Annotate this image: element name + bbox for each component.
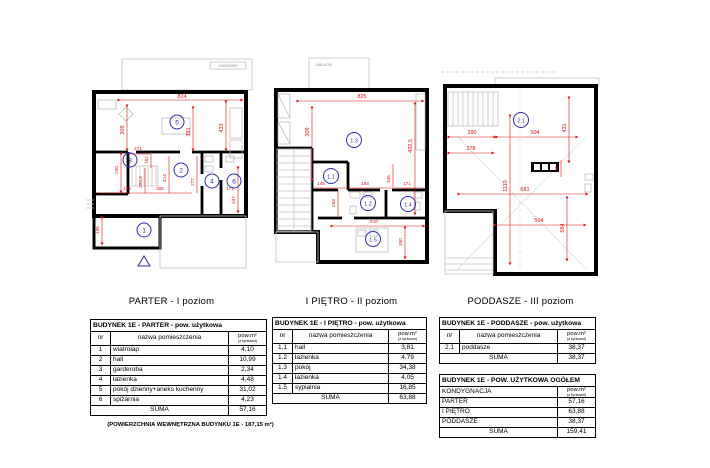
area-cell: 63,88 [558, 408, 596, 418]
dim-label: 391 [186, 127, 192, 136]
dim-label: 510 [370, 219, 378, 224]
dim-label: 162 [144, 156, 149, 164]
name-cell: hall [293, 344, 389, 354]
plan-caption: I PIĘTRO - II poziom [268, 296, 435, 307]
suma-value: 57,16 [229, 406, 267, 416]
staircase [86, 166, 158, 208]
room-number-marker: 1.1 [327, 174, 335, 180]
name-cell: hall [111, 356, 229, 366]
room-markers: 2.1 [514, 113, 529, 128]
dim-label: 290 [467, 130, 476, 136]
staircase [448, 92, 498, 126]
room-number-marker: 2.1 [517, 118, 525, 124]
table-header-row: nr nazwa pomieszczenia pow.m²(z tynkami) [440, 330, 596, 344]
dim-label: 95 [554, 165, 559, 171]
suma-row: SUMA57,16 [91, 406, 267, 416]
area-cell: 4,10 [229, 346, 267, 356]
room-number-marker: 1 [142, 228, 146, 235]
parter-floor-plan-drawing: OGRÓDEK [84, 56, 259, 290]
suma-row: SUMA63,88 [273, 394, 427, 404]
suma-value: 63,88 [389, 394, 427, 404]
nr-cell: 5 [91, 386, 111, 396]
name-cell: wiatrołap [111, 346, 229, 356]
storey-header: KONDYGNACJA [440, 387, 558, 398]
area-header: pow.m²(z tynkami) [389, 330, 427, 344]
room-number-marker: 1.3 [350, 138, 358, 144]
table-title: BUDYNEK 1E - PODDASZE - pow. użytkowa [440, 318, 596, 330]
room-number-marker: 5 [175, 120, 179, 127]
nr-cell: 6 [91, 396, 111, 406]
name-cell: sypialnia [293, 384, 389, 394]
table-row: PARTER57,16 [440, 398, 596, 408]
furniture [278, 94, 425, 252]
dim-label: 445 [386, 175, 391, 183]
dim-label: 309 [120, 125, 126, 134]
table-row: 1.4łazienka4,05 [273, 374, 427, 384]
table-row: I PIĘTRO63,88 [440, 408, 596, 418]
suma-label: SUMA [440, 354, 558, 364]
dim-label: 305 [156, 186, 164, 191]
table-row: 1.1hall3,81 [273, 344, 427, 354]
nr-cell: 1 [91, 346, 111, 356]
plan-poddasze: 290 504 431 278 95 1110 681 504 584 2.1 … [437, 56, 604, 307]
dim-label: 247 [231, 196, 236, 204]
terrace-outline [160, 216, 246, 268]
room-number-marker: 1.5 [369, 237, 377, 243]
name-cell: spiżarnia [111, 396, 229, 406]
plan-caption: PARTER - I poziom [84, 296, 259, 307]
area-cell: 4,23 [229, 396, 267, 406]
dim-label: 433 [219, 123, 225, 132]
dim-label: 193 [361, 181, 369, 186]
dim-label: 504 [534, 218, 543, 224]
room-number-marker: 4 [210, 179, 214, 186]
dim-label: 432,5 [408, 139, 414, 153]
area-cell: 4,48 [229, 376, 267, 386]
nr-cell: 2 [91, 356, 111, 366]
suma-label: SUMA [91, 406, 229, 416]
table-pietro-areas: BUDYNEK 1E - I PIĘTRO - pow. użytkowa nr… [272, 317, 427, 404]
room-number-marker: 2 [179, 168, 183, 175]
area-cell: 2,34 [229, 366, 267, 376]
suma-label: SUMA [440, 428, 558, 438]
area-cell: 4,79 [389, 354, 427, 364]
plan-caption: PODDASZE - III poziom [437, 296, 604, 307]
table-row: 1wiatrołap4,10 [91, 346, 267, 356]
table-total-areas: BUDYNEK 1E - POW. UŻYTKOWA OGÓŁEM KONDYG… [439, 374, 596, 438]
area-cell: 57,16 [558, 398, 596, 408]
dim-label: 145 [317, 181, 325, 186]
suma-row: SUMA38,37 [440, 354, 596, 364]
suma-value: 38,37 [558, 354, 596, 364]
suma-value: 159,41 [558, 428, 596, 438]
furniture [585, 174, 593, 192]
area-cell: 16,85 [389, 384, 427, 394]
nr-cell: 1.4 [273, 374, 293, 384]
nr-header: nr [440, 330, 460, 344]
poddasze-floor-plan-drawing: 290 504 431 278 95 1110 681 504 584 2.1 [437, 56, 604, 290]
area-header: pow.m²(z tynkami) [558, 330, 596, 344]
table-row: 2.1poddasze38,37 [440, 344, 596, 354]
garden-label: OGRÓDEK [218, 63, 238, 68]
walls [276, 90, 427, 262]
dim-label: 824 [177, 94, 186, 100]
table-row: 4łazienka4,48 [91, 376, 267, 386]
pietro-floor-plan-drawing: BALKON [268, 56, 435, 290]
dim-label: 155 [95, 226, 100, 234]
storey-cell: I PIĘTRO [440, 408, 558, 418]
nr-cell: 1.1 [273, 344, 293, 354]
room-number-marker: 6 [232, 179, 236, 186]
area-cell: 34,38 [389, 364, 427, 374]
balcony-outline: BALKON [309, 58, 369, 90]
dim-label: 129 [123, 186, 131, 191]
entrance-arrow-icon [138, 256, 150, 266]
dim-label: 271 [134, 146, 142, 151]
suma-row: SUMA159,41 [440, 428, 596, 438]
dim-label: 295,5 [138, 176, 143, 188]
dim-label: 200 [114, 166, 119, 174]
dim-label: 1110 [503, 180, 509, 191]
table-title-row: BUDYNEK 1E - I PIĘTRO - pow. użytkowa [273, 318, 427, 330]
area-header: pow.m²(z tynkami) [558, 387, 596, 398]
area-cell: 4,05 [389, 374, 427, 384]
table-row: 3garderoba2,34 [91, 366, 267, 376]
table-row: 1.2łazienka4,79 [273, 354, 427, 364]
table-row: PODDASZE38,37 [440, 418, 596, 428]
dim-label: 504 [530, 130, 539, 136]
nr-cell: 2.1 [440, 344, 460, 354]
table-title-row: BUDYNEK 1E - POW. UŻYTKOWA OGÓŁEM [440, 375, 596, 387]
table-row: 6spiżarnia4,23 [91, 396, 267, 406]
floor-plan-sheet: OGRÓDEK [0, 0, 710, 468]
storey-cell: PODDASZE [440, 418, 558, 428]
room-number-marker: 1.4 [404, 202, 412, 208]
table-header-row: nr nazwa pomieszczenia pow.m²(z tynkami) [273, 330, 427, 344]
area-header: pow.m²(z tynkami) [229, 332, 267, 346]
table-row: 1.3pokój34,38 [273, 364, 427, 374]
name-header: nazwa pomieszczenia [460, 330, 558, 344]
area-cell: 10,99 [229, 356, 267, 366]
room-number-marker: 1.2 [364, 201, 372, 207]
table-row: 1.5sypialnia16,85 [273, 384, 427, 394]
roof-slope-lines [457, 89, 587, 271]
dim-label: 330 [398, 238, 403, 246]
area-cell: 38,37 [558, 418, 596, 428]
table-row: 5pokój dzienny+aneks kuchenny31,02 [91, 386, 267, 396]
plan-parter: OGRÓDEK [84, 56, 259, 307]
nr-cell: 1.3 [273, 364, 293, 374]
name-cell: pokój [293, 364, 389, 374]
name-cell: poddasze [460, 344, 558, 354]
nr-header: nr [91, 332, 111, 346]
name-cell: łazienka [293, 354, 389, 364]
internal-area-footnote: (POWIERZCHNIA WEWNĘTRZNA BUDYNKU 1E - 18… [88, 422, 293, 428]
table-title: BUDYNEK 1E - POW. UŻYTKOWA OGÓŁEM [440, 375, 596, 387]
dim-label: 278 [466, 146, 475, 152]
dim-label: 309 [305, 127, 311, 136]
area-cell: 3,81 [389, 344, 427, 354]
table-parter-areas: BUDYNEK 1E - PARTER - pow. użytkowa nr n… [90, 319, 267, 416]
dim-label: 263 [331, 199, 336, 207]
dim-label: 584 [560, 223, 566, 232]
nr-cell: 1.2 [273, 354, 293, 364]
table-poddasze-areas: BUDYNEK 1E - PODDASZE - pow. użytkowa nr… [439, 317, 596, 364]
dim-label: 825 [357, 94, 366, 100]
table-title: BUDYNEK 1E - I PIĘTRO - pow. użytkowa [273, 318, 427, 330]
dim-label: 171 [403, 181, 411, 186]
nr-cell: 4 [91, 376, 111, 386]
plan-pietro: BALKON [268, 56, 435, 307]
balcony-label: BALKON [316, 63, 332, 67]
nr-header: nr [273, 330, 293, 344]
name-cell: łazienka [111, 376, 229, 386]
name-cell: pokój dzienny+aneks kuchenny [111, 386, 229, 396]
name-cell: garderoba [111, 366, 229, 376]
roof-overhang-outline [441, 72, 599, 86]
table-title-row: BUDYNEK 1E - PODDASZE - pow. użytkowa [440, 318, 596, 330]
dim-label: 277 [190, 178, 195, 186]
name-cell: łazienka [293, 374, 389, 384]
dim-label: 414 [162, 174, 167, 182]
room-number-marker: 3 [128, 158, 132, 165]
table-title: BUDYNEK 1E - PARTER - pow. użytkowa [91, 320, 267, 332]
table-row: 2hall10,99 [91, 356, 267, 366]
dimension-lines: 824 309 391 433 271 162 200 129 295,5 30… [95, 94, 242, 244]
nr-cell: 3 [91, 366, 111, 376]
suma-label: SUMA [273, 394, 389, 404]
table-header-row: nr nazwa pomieszczenia pow.m²(z tynkami) [91, 332, 267, 346]
dim-label: 681 [520, 187, 529, 193]
area-cell: 31,02 [229, 386, 267, 396]
storey-cell: PARTER [440, 398, 558, 408]
nr-cell: 1.5 [273, 384, 293, 394]
dim-label: 431 [562, 123, 568, 132]
name-header: nazwa pomieszczenia [293, 330, 389, 344]
area-cell: 38,37 [558, 344, 596, 354]
table-header-row: KONDYGNACJA pow.m²(z tynkami) [440, 387, 596, 398]
garden-outline: OGRÓDEK [122, 59, 252, 90]
porch-outline [445, 211, 493, 274]
table-title-row: BUDYNEK 1E - PARTER - pow. użytkowa [91, 320, 267, 332]
name-header: nazwa pomieszczenia [111, 332, 229, 346]
